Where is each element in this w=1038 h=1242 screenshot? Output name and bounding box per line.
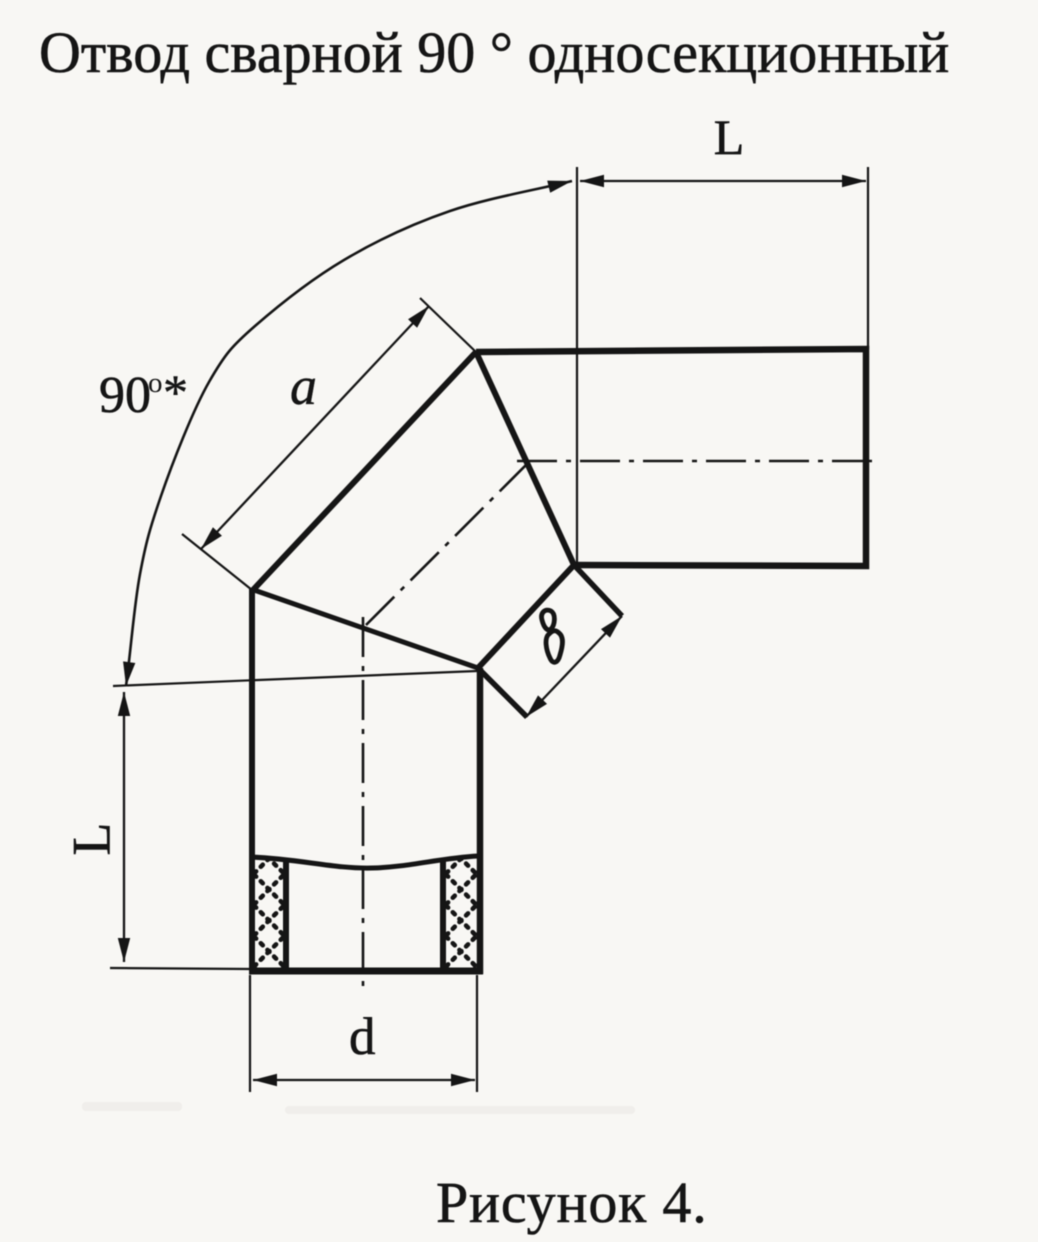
svg-text:*: * xyxy=(163,364,188,420)
svg-text:L: L xyxy=(714,109,745,165)
svg-text:L: L xyxy=(62,823,122,856)
svg-text:o: o xyxy=(148,367,163,399)
svg-text:d: d xyxy=(349,1008,376,1066)
svg-text:Рисунок 4.: Рисунок 4. xyxy=(436,1170,708,1235)
svg-text:90: 90 xyxy=(99,367,151,424)
svg-text:Отвод сварной 90 ° односекцион: Отвод сварной 90 ° односекционный xyxy=(39,20,949,85)
svg-text:a: a xyxy=(290,356,317,416)
